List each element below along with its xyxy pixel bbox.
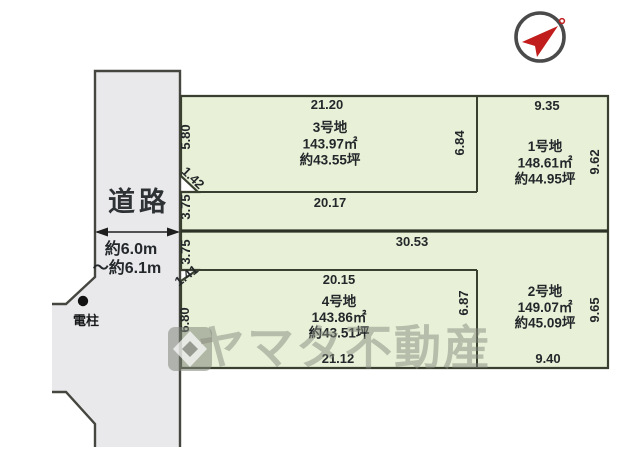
dim-plot4-right: 6.87 (456, 290, 471, 315)
dim-plot2-bottom: 9.40 (535, 351, 560, 366)
plot3-area: 143.97㎡ (303, 136, 358, 152)
road-width-note-line2: ～約6.1m (93, 258, 161, 277)
road-label: 道路 (108, 186, 170, 217)
compass (516, 13, 564, 61)
watermark: ヤマタ不動産 (168, 321, 492, 374)
plot3-name: 3号地 (313, 119, 348, 135)
dim-total-width: 30.53 (396, 234, 429, 249)
plot3-tsubo: 約43.55坪 (300, 152, 361, 168)
plot4-name: 4号地 (322, 293, 357, 309)
plot2-name: 2号地 (528, 283, 563, 299)
dim-plot2-right: 9.65 (587, 297, 602, 322)
plot1-name: 1号地 (528, 138, 563, 154)
dim-plot1-top: 9.35 (534, 98, 559, 113)
dim-plot3-left: 5.80 (178, 124, 193, 149)
lot-layout-diagram: 3号地 143.97㎡ 約43.55坪 21.20 5.80 6.84 20.1… (0, 0, 640, 462)
dim-plot3-top: 21.20 (311, 97, 344, 112)
dim-plot4-top: 20.15 (323, 272, 356, 287)
plot2-tsubo: 約45.09坪 (515, 315, 576, 331)
dim-plot1-right: 9.62 (587, 149, 602, 174)
road-surface (52, 71, 180, 447)
plot1-area: 148.61㎡ (518, 155, 573, 171)
utility-pole-dot (78, 296, 88, 306)
dim-plot3-right: 6.84 (452, 130, 467, 156)
dim-plot3-bottom: 20.17 (314, 195, 347, 210)
dim-pole1-frontage: 3.75 (178, 194, 193, 219)
road-width-note-line1: 約6.0m (105, 239, 157, 258)
diagram-svg: 3号地 143.97㎡ 約43.55坪 21.20 5.80 6.84 20.1… (0, 0, 640, 462)
plot1-tsubo: 約44.95坪 (515, 171, 576, 187)
plot2-area: 149.07㎡ (518, 299, 573, 315)
utility-pole-label: 電柱 (73, 313, 99, 328)
watermark-text: ヤマタ不動産 (198, 321, 492, 374)
dim-pole2-frontage: 3.75 (178, 239, 193, 264)
north-mark-icon (560, 19, 565, 24)
road-area (52, 71, 180, 447)
